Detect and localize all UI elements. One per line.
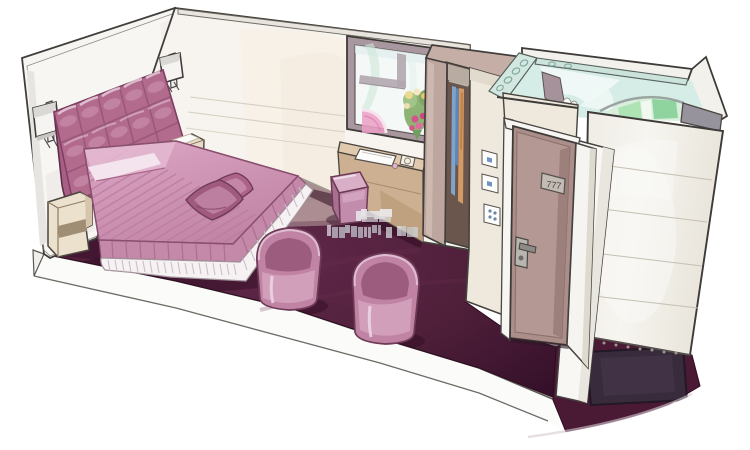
svg-text:777: 777: [546, 179, 562, 191]
